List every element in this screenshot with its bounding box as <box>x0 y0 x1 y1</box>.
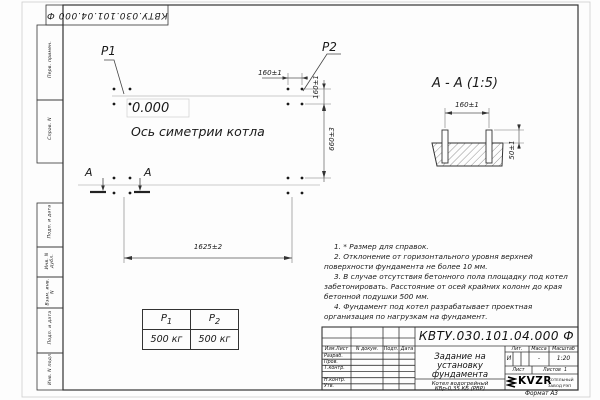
strip-label-podp-data-2: Подп. и дата <box>48 305 53 350</box>
drawing-sheet: КВТУ.030.101.04.000 Ф Перв. примен. Спра… <box>0 0 600 400</box>
mass-header: Масса <box>529 347 549 352</box>
loads-table: P1 P2 500 кг 500 кг <box>142 309 239 350</box>
col-header-podp: Подп. <box>383 347 399 352</box>
strip-label-sprav-n: Справ. N <box>48 97 53 160</box>
row-label-prov: Пров. <box>324 360 338 365</box>
note-3: 3. В случае отсутствия бетонного пола пл… <box>324 272 576 302</box>
drawing-title-line-3: фундамента <box>415 370 505 380</box>
col-header-data: Дата <box>399 347 415 352</box>
strip-label-vzam-inv: Взам. инв. N <box>45 276 55 307</box>
loads-table-value-p2: 500 кг <box>191 330 239 350</box>
scale-value: 1:20 <box>549 352 578 366</box>
lit-header: Лит. <box>505 347 529 352</box>
section-letter-right: А <box>144 166 152 179</box>
company-coil-icon <box>506 376 517 388</box>
row-label-nkontr: Н.контр. <box>324 378 345 383</box>
format-label: Формат А3 <box>505 391 578 397</box>
p2-leader <box>303 54 341 91</box>
loads-table-header-p2: P2 <box>191 310 239 330</box>
level-mark: 0.000 <box>132 101 169 116</box>
title-block-doc-number: КВТУ.030.101.04.000 Ф <box>415 327 578 346</box>
lit-value: И <box>505 352 513 366</box>
row-label-utv: Утв. <box>324 384 334 389</box>
col-header-izm-list: Изм.Лист <box>322 347 351 352</box>
col-header-n-dokum: N докум. <box>351 347 383 352</box>
note-1: 1. * Размер для справок. <box>324 242 576 252</box>
scale-header: Масштаб <box>549 347 578 352</box>
row-label-razrab: Разраб. <box>324 354 343 359</box>
dim-bolt-vertical: 160±1 <box>312 68 320 106</box>
loads-table-value-p1: 500 кг <box>143 330 191 350</box>
plan-view <box>78 54 341 263</box>
strip-label-perv-primen: Перв. примен. <box>48 22 53 97</box>
mass-value: - <box>529 352 549 366</box>
dim-bolt-horizontal: 160±1 <box>256 69 284 77</box>
company-logo-text: KVZR <box>518 375 552 387</box>
loads-table-header-p1: P1 <box>143 310 191 330</box>
p2-label: P2 <box>322 40 337 54</box>
section-dim-spacing: 160±1 <box>445 101 489 109</box>
sheets-total: Листов 1 <box>532 368 578 373</box>
anchor-bolt-right <box>486 130 492 163</box>
strip-label-inv-dubl: Инв. N дубл. <box>45 246 55 276</box>
notes-block: 1. * Размер для справок. 2. Отклонение о… <box>324 242 576 323</box>
p1-label: P1 <box>101 44 116 58</box>
anchor-bolt-left <box>442 130 448 163</box>
company-name-line-1: КОТЕЛЬНЫЙ <box>548 378 574 382</box>
row-label-tkontr: Т.контр. <box>324 366 345 371</box>
strip-label-podp-data-1: Подп. и дата <box>48 200 53 244</box>
section-title: А - А (1:5) <box>432 76 498 91</box>
corner-stamp-number: КВТУ.030.101.04.000 Ф <box>46 5 168 25</box>
sheet-label: Лист <box>505 368 532 373</box>
note-4: 4. Фундамент под котел разрабатывает про… <box>324 302 576 322</box>
note-2: 2. Отклонение от горизонтального уровня … <box>324 252 576 272</box>
strip-label-inv-podl: Инв. N подл. <box>48 350 53 387</box>
section-dim-height: 50±1 <box>508 131 516 169</box>
company-name-line-2: ЗАВОД РЭП <box>548 384 571 388</box>
dim-width-1625: 1625±2 <box>183 243 233 251</box>
axis-of-symmetry-label: Ось симетрии котла <box>131 124 265 139</box>
dim-height-660: 660±3 <box>328 120 336 158</box>
product-name-line-2: КВр-0,35 КБ (РВР) <box>415 386 505 392</box>
section-letter-left: А <box>85 166 93 179</box>
